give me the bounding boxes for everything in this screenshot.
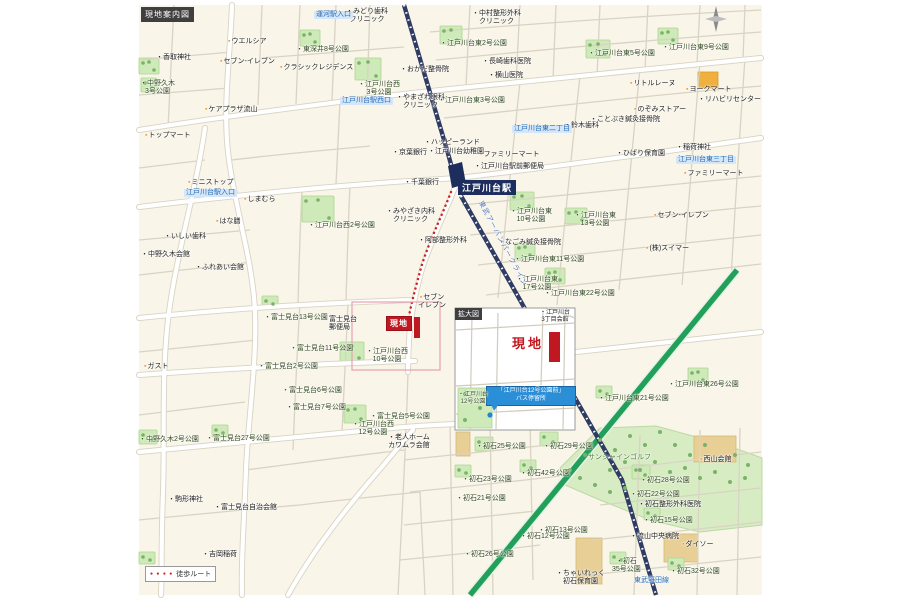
legend-walk-route: ● ● ● ●徒歩ルート xyxy=(145,566,216,582)
bus-stop-icon xyxy=(487,412,492,417)
inset-title: 拡大図 xyxy=(455,308,482,320)
site-building-inset xyxy=(549,332,560,362)
bus-stop-type: バス停留所 xyxy=(516,396,546,402)
legend-dots: ● ● ● ● xyxy=(150,571,173,577)
site-label-main: 現地 xyxy=(386,316,412,331)
legend-label: 徒歩ルート xyxy=(176,571,211,578)
map-title: 現地案内図 xyxy=(141,7,194,22)
map-screenshot: 現地案内図 江戸川台駅 現地 拡大図 現地 「江戸川台12号公園前」 バス停留所… xyxy=(0,0,900,600)
inset-map xyxy=(455,308,575,430)
bus-stop-callout: 「江戸川台12号公園前」 バス停留所 xyxy=(486,386,576,406)
bus-stop-name: 「江戸川台12号公園前」 xyxy=(498,388,565,394)
site-label-inset: 現地 xyxy=(512,333,544,352)
site-building-main xyxy=(414,317,420,338)
map-canvas xyxy=(0,0,900,600)
station-label: 江戸川台駅 xyxy=(458,180,516,195)
